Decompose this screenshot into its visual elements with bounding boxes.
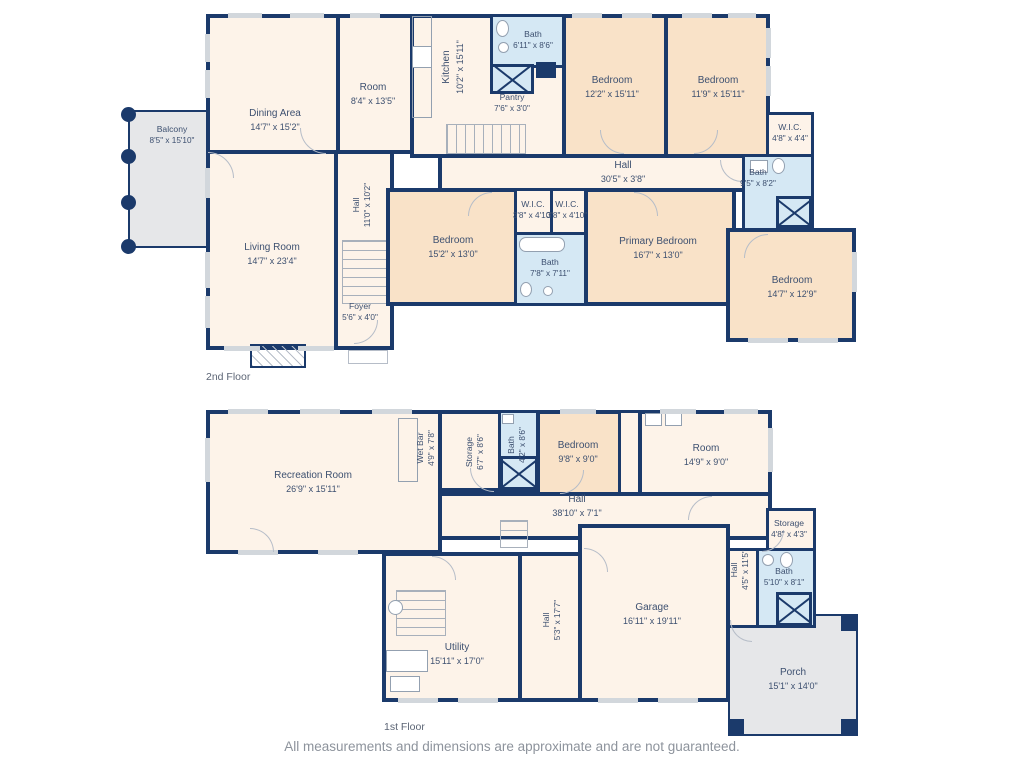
room-wic-2 bbox=[550, 188, 588, 236]
window bbox=[318, 550, 358, 555]
stairs bbox=[446, 124, 526, 154]
vanity-icon bbox=[645, 413, 662, 426]
toilet-icon bbox=[772, 158, 785, 174]
room-garage bbox=[578, 524, 730, 702]
room-wic-right bbox=[766, 112, 814, 158]
sink-icon bbox=[762, 554, 774, 566]
utility-sink-icon bbox=[388, 600, 403, 615]
window bbox=[300, 409, 340, 414]
sink-icon bbox=[543, 286, 553, 296]
floor-label-2nd: 2nd Floor bbox=[206, 371, 250, 383]
window bbox=[598, 698, 638, 703]
window bbox=[228, 13, 262, 18]
window bbox=[768, 428, 773, 472]
stairs bbox=[342, 240, 390, 304]
washer-icon bbox=[386, 650, 428, 672]
bathtub-icon bbox=[519, 237, 565, 252]
window bbox=[350, 13, 380, 18]
room-balcony bbox=[128, 110, 210, 248]
window bbox=[205, 438, 210, 482]
window bbox=[766, 28, 771, 58]
window bbox=[298, 346, 334, 351]
room-hall-main-2f bbox=[438, 154, 750, 192]
window bbox=[205, 252, 210, 288]
wet-bar-counter bbox=[398, 418, 418, 482]
room-wic-1 bbox=[514, 188, 554, 236]
floor-plan-page: Dining Area 14'7" x 15'2" Room 8'4" x 13… bbox=[0, 0, 1024, 768]
shower-icon bbox=[776, 592, 812, 626]
room-living-room bbox=[206, 150, 338, 350]
sink-icon bbox=[498, 42, 509, 53]
laundry-icon bbox=[390, 676, 420, 692]
toilet-icon bbox=[496, 20, 509, 37]
entry-stoop bbox=[348, 350, 388, 364]
window bbox=[398, 698, 438, 703]
porch-post bbox=[841, 719, 856, 734]
room-room-2f bbox=[336, 14, 414, 154]
shower-icon bbox=[776, 196, 812, 228]
sink-icon bbox=[502, 414, 514, 424]
room-primary-bedroom bbox=[584, 188, 736, 306]
window bbox=[372, 409, 412, 414]
porch-post bbox=[841, 616, 856, 631]
balcony-column bbox=[121, 149, 136, 164]
toilet-icon bbox=[520, 282, 532, 297]
window bbox=[798, 338, 838, 343]
window bbox=[572, 13, 602, 18]
stairs bbox=[396, 590, 446, 636]
porch-post bbox=[729, 719, 744, 734]
window bbox=[724, 409, 758, 414]
balcony-column bbox=[121, 239, 136, 254]
floor-label-1st: 1st Floor bbox=[384, 721, 425, 733]
balcony-column bbox=[121, 107, 136, 122]
room-hall-vert-1f bbox=[518, 552, 582, 702]
plumbing-chase bbox=[536, 62, 556, 78]
window bbox=[228, 409, 268, 414]
shower-icon bbox=[500, 456, 538, 490]
window bbox=[205, 34, 210, 62]
window bbox=[622, 13, 652, 18]
stove-icon bbox=[412, 46, 432, 68]
vanity-icon bbox=[665, 413, 682, 426]
window bbox=[728, 13, 756, 18]
window bbox=[458, 698, 498, 703]
window bbox=[290, 13, 324, 18]
window bbox=[852, 252, 857, 292]
window bbox=[205, 70, 210, 98]
balcony-column bbox=[121, 195, 136, 210]
window bbox=[205, 296, 210, 328]
window bbox=[748, 338, 788, 343]
stairs bbox=[500, 520, 528, 548]
window bbox=[766, 66, 771, 96]
window bbox=[560, 409, 596, 414]
disclaimer-text: All measurements and dimensions are appr… bbox=[0, 739, 1024, 754]
vanity-icon bbox=[750, 160, 768, 173]
window bbox=[658, 698, 698, 703]
toilet-icon bbox=[780, 552, 793, 568]
window bbox=[660, 409, 696, 414]
room-bedroom-4 bbox=[726, 228, 856, 342]
window bbox=[682, 13, 712, 18]
room-bedroom-3 bbox=[386, 188, 518, 306]
shower-icon bbox=[490, 64, 534, 94]
window bbox=[224, 346, 260, 351]
